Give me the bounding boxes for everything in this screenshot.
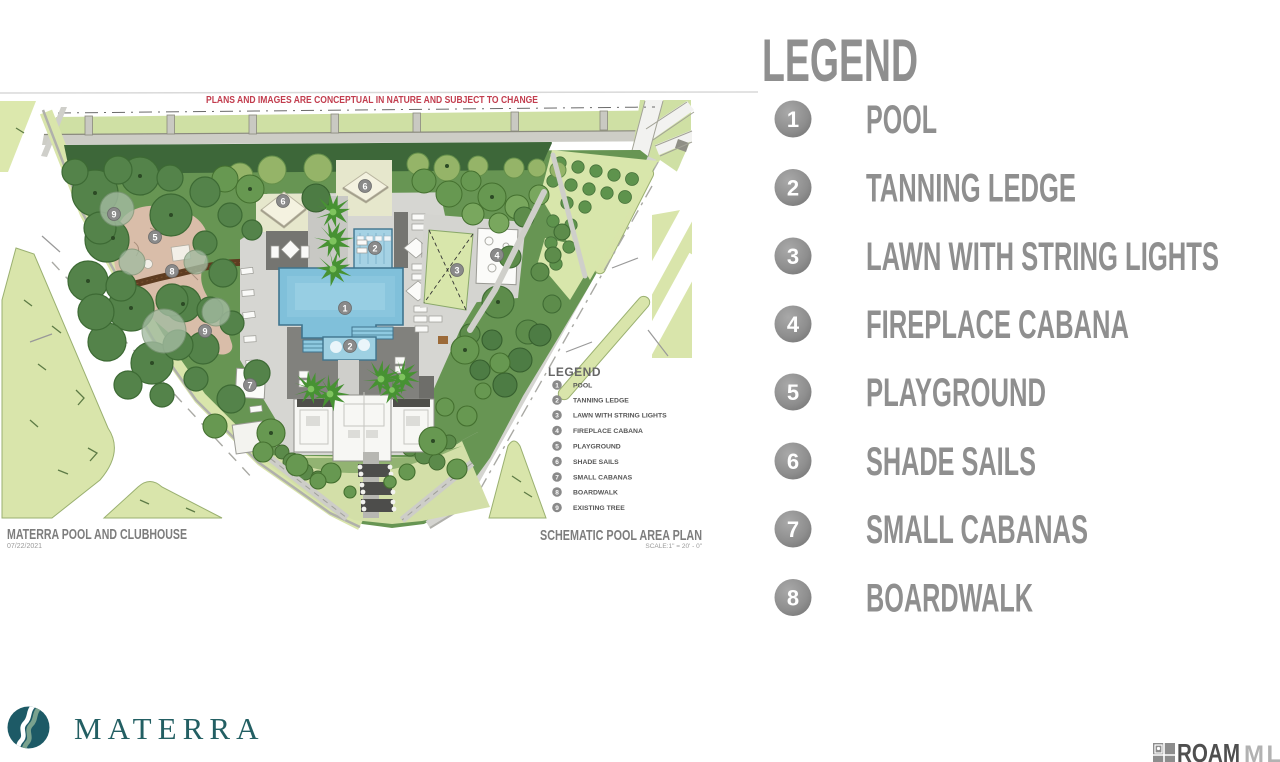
svg-text:SMALL CABANAS: SMALL CABANAS [573, 475, 633, 482]
svg-text:PLAYGROUND: PLAYGROUND [866, 371, 1046, 415]
svg-text:PLANS AND IMAGES ARE CONCEPTUA: PLANS AND IMAGES ARE CONCEPTUAL IN NATUR… [206, 94, 538, 106]
svg-text:9: 9 [555, 505, 559, 512]
svg-text:8: 8 [555, 489, 559, 496]
svg-text:3: 3 [454, 266, 459, 276]
svg-text:2: 2 [787, 176, 799, 201]
svg-text:1: 1 [787, 107, 799, 132]
svg-text:6: 6 [555, 459, 559, 466]
svg-text:LEGEND: LEGEND [548, 365, 601, 379]
svg-text:POOL: POOL [573, 383, 592, 390]
svg-text:1: 1 [342, 304, 347, 314]
svg-text:3: 3 [555, 412, 559, 419]
svg-text:5: 5 [787, 380, 799, 405]
svg-text:MATERRA POOL AND CLUBHOUSE: MATERRA POOL AND CLUBHOUSE [7, 527, 187, 543]
svg-text:7: 7 [247, 381, 252, 391]
svg-text:ROAM: ROAM [1177, 738, 1240, 762]
svg-text:4: 4 [555, 428, 559, 435]
svg-text:LEGEND: LEGEND [762, 27, 918, 94]
svg-text:3: 3 [787, 244, 799, 269]
svg-text:5: 5 [555, 443, 559, 450]
svg-text:SMALL CABANAS: SMALL CABANAS [866, 508, 1088, 552]
svg-text:8: 8 [169, 267, 174, 277]
svg-text:BOARDWALK: BOARDWALK [573, 490, 618, 497]
svg-text:SCHEMATIC POOL AREA PLAN: SCHEMATIC POOL AREA PLAN [540, 527, 702, 544]
svg-text:PLAYGROUND: PLAYGROUND [573, 444, 621, 451]
svg-text:5: 5 [152, 233, 157, 243]
svg-text:2: 2 [555, 397, 559, 404]
svg-text:FIREPLACE CABANA: FIREPLACE CABANA [866, 303, 1129, 347]
svg-text:07/22/2021: 07/22/2021 [7, 543, 42, 550]
svg-text:SHADE SAILS: SHADE SAILS [573, 459, 619, 466]
svg-text:6: 6 [787, 449, 799, 474]
svg-text:POOL: POOL [866, 98, 937, 142]
svg-text:2: 2 [347, 342, 352, 352]
svg-text:LAWN WITH STRING LIGHTS: LAWN WITH STRING LIGHTS [866, 235, 1219, 279]
svg-text:6: 6 [280, 197, 285, 207]
svg-text:8: 8 [787, 586, 799, 611]
svg-text:4: 4 [787, 312, 800, 337]
svg-text:LAWN WITH STRING LIGHTS: LAWN WITH STRING LIGHTS [573, 413, 667, 420]
svg-text:7: 7 [787, 517, 799, 542]
svg-text:2: 2 [372, 244, 377, 254]
svg-text:TANNING LEDGE: TANNING LEDGE [866, 167, 1076, 211]
svg-text:MATERRA: MATERRA [74, 711, 268, 746]
svg-text:9: 9 [202, 327, 207, 337]
svg-text:EXISTING TREE: EXISTING TREE [573, 505, 625, 512]
svg-text:1: 1 [555, 382, 559, 389]
svg-text:9: 9 [111, 210, 116, 220]
svg-text:7: 7 [555, 474, 559, 481]
svg-text:SHADE SAILS: SHADE SAILS [866, 440, 1036, 484]
svg-text:BOARDWALK: BOARDWALK [866, 577, 1033, 621]
svg-text:FIREPLACE CABANA: FIREPLACE CABANA [573, 428, 643, 435]
svg-text:TANNING LEDGE: TANNING LEDGE [573, 398, 629, 405]
svg-text:SCALE:1" = 20' - 0": SCALE:1" = 20' - 0" [645, 543, 702, 550]
svg-text:6: 6 [362, 182, 367, 192]
svg-text:MLS: MLS [1244, 741, 1280, 762]
svg-text:4: 4 [494, 251, 499, 261]
